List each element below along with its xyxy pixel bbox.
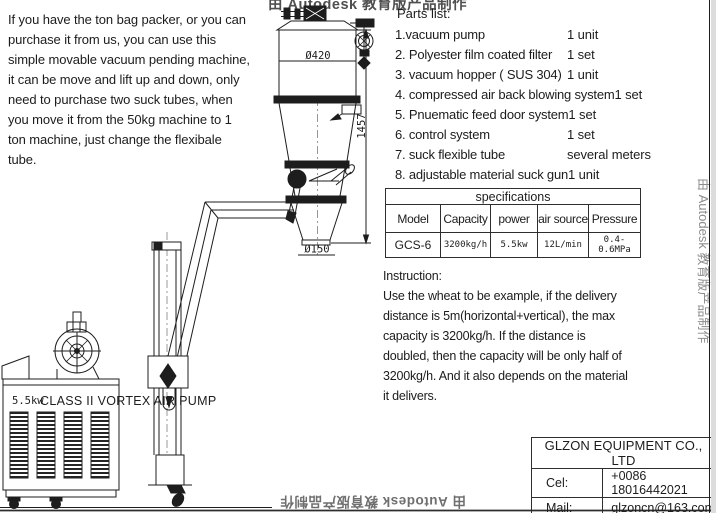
lift-column-drawing [148, 232, 192, 509]
spec-table: specifications Model Capacity power air … [385, 188, 641, 258]
spec-col-power: power [491, 205, 538, 233]
phone-row: Cel: +0086 18016442021 [532, 469, 716, 498]
spec-col-air-source: air source [538, 205, 589, 233]
part-qty: several meters [567, 147, 651, 162]
part-item: 2. Polyester film coated filter1 set [395, 44, 695, 64]
email-row: Mail: glzoncn@163.com [532, 498, 716, 513]
pump-name-label: CLASS II VORTEX AIR PUMP [40, 394, 216, 408]
company-name: GLZON EQUIPMENT CO., LTD [532, 438, 716, 469]
part-item: 5. Pnuematic feed door system1 set [395, 104, 695, 124]
phone-value: +0086 18016442021 [603, 469, 716, 498]
spec-value-capacity: 3200kg/h [441, 233, 491, 258]
spec-col-pressure: Pressure [589, 205, 641, 233]
part-item: 3. vacuum hopper ( SUS 304)1 unit [395, 64, 695, 84]
parts-list: Parts list: 1.vacuum pump1 unit 2. Polye… [395, 6, 695, 184]
part-name: 5. Pnuematic feed door system [395, 107, 568, 122]
instruction-paragraph: Instruction: Use the wheat to be example… [383, 266, 658, 406]
part-item: 1.vacuum pump1 unit [395, 24, 695, 44]
spec-value-pressure: 0.4-0.6MPa [589, 233, 641, 258]
part-item: 7. suck flexible tubeseveral meters [395, 144, 695, 164]
part-name: 1.vacuum pump [395, 27, 567, 42]
part-qty: 1 set [567, 47, 595, 62]
part-name: 4. compressed air back blowing system [395, 87, 614, 102]
spec-col-capacity: Capacity [441, 205, 491, 233]
phone-label: Cel: [532, 469, 603, 498]
spec-value-air-source: 12L/min [538, 233, 589, 258]
part-name: 3. vacuum hopper ( SUS 304) [395, 67, 567, 82]
spec-value-power: 5.5kw [491, 233, 538, 258]
spec-table-title: specifications [386, 189, 641, 205]
part-name: 2. Polyester film coated filter [395, 47, 567, 62]
part-qty: 1 unit [567, 27, 598, 42]
scan-edge [711, 0, 716, 513]
dim-body-diameter: Ø420 [305, 50, 330, 62]
part-qty: 1 set [567, 127, 595, 142]
part-name: 7. suck flexible tube [395, 147, 567, 162]
part-qty: 1 unit [567, 67, 598, 82]
part-qty: 1 unit [568, 167, 599, 182]
part-qty: 1 set [568, 107, 596, 122]
title-block: GLZON EQUIPMENT CO., LTD Cel: +0086 1801… [531, 437, 716, 513]
spec-col-model: Model [386, 205, 441, 233]
part-qty: 1 set [614, 87, 642, 102]
dim-height-label: 1457 [356, 113, 368, 138]
dim-outlet-diameter: Ø150 [304, 244, 329, 256]
parts-list-title: Parts list: [397, 6, 695, 21]
boom-arm-drawing [168, 202, 294, 360]
part-item: 6. control system1 set [395, 124, 695, 144]
part-item: 8. adjustable material suck gun1 unit [395, 164, 695, 184]
intro-paragraph: If you have the ton bag packer, or you c… [8, 10, 258, 170]
part-name: 6. control system [395, 127, 567, 142]
spec-value-model: GCS-6 [386, 233, 441, 258]
datasheet-page: 由 Autodesk 教育版产品制作 由 Autodesk 教育版产品制作 由 … [0, 0, 716, 513]
part-name: 8. adjustable material suck gun [395, 167, 568, 182]
part-item: 4. compressed air back blowing system1 s… [395, 84, 695, 104]
email-label: Mail: [532, 498, 603, 513]
email-value: glzoncn@163.com [603, 498, 716, 513]
vortex-air-pump-drawing [2, 312, 119, 509]
